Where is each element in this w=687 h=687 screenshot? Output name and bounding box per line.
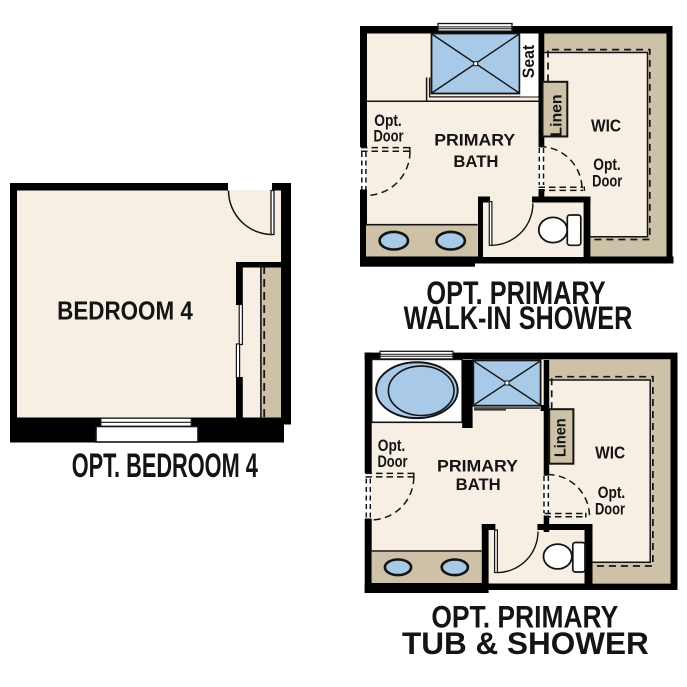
svg-text:Door: Door [595, 500, 625, 519]
svg-text:BEDROOM 4: BEDROOM 4 [57, 297, 193, 326]
svg-text:Seat: Seat [520, 44, 539, 78]
svg-text:WIC: WIC [591, 115, 621, 135]
svg-text:WALK-IN SHOWER: WALK-IN SHOWER [404, 301, 633, 337]
svg-text:WIC: WIC [595, 442, 625, 462]
svg-text:PRIMARY: PRIMARY [437, 457, 519, 475]
svg-text:Door: Door [377, 452, 407, 471]
svg-text:Door: Door [373, 127, 403, 146]
svg-text:PRIMARY: PRIMARY [434, 131, 516, 149]
svg-text:Linen: Linen [552, 418, 570, 457]
svg-text:BATH: BATH [456, 475, 501, 494]
svg-text:OPT. BEDROOM 4: OPT. BEDROOM 4 [72, 447, 258, 485]
svg-text:Linen: Linen [548, 94, 565, 136]
svg-text:Door: Door [592, 172, 622, 191]
svg-text:TUB & SHOWER: TUB & SHOWER [402, 625, 649, 661]
svg-text:BATH: BATH [453, 152, 498, 171]
